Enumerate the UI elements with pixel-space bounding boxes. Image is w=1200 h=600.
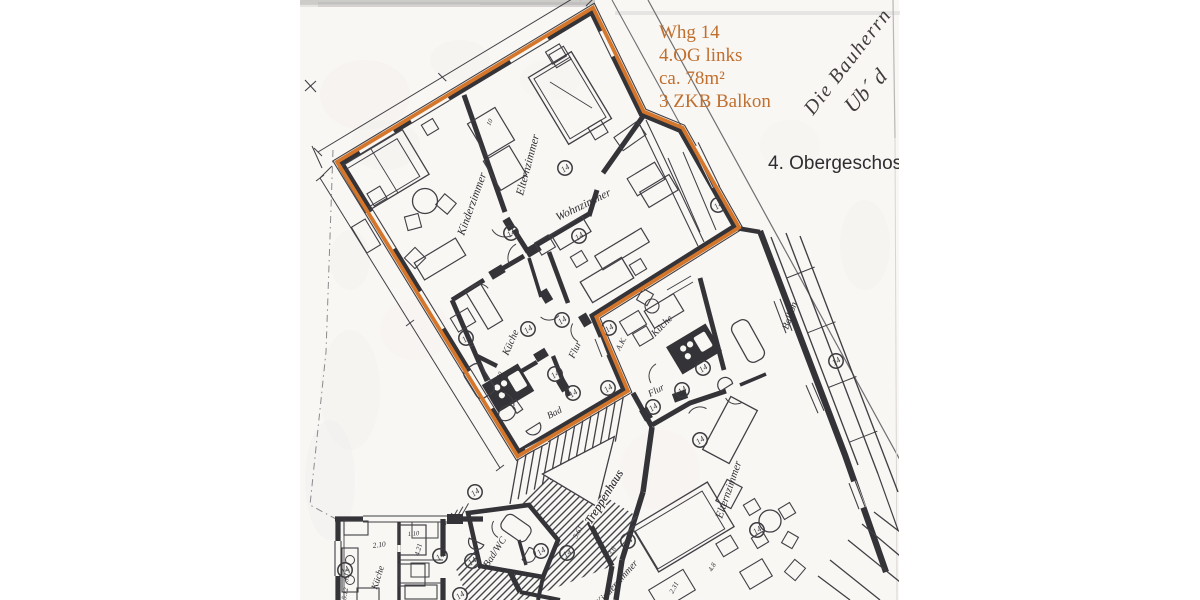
svg-text:4.OG links: 4.OG links	[659, 45, 742, 66]
svg-text:ca. 78m²: ca. 78m²	[659, 68, 725, 89]
svg-text:2.10: 2.10	[372, 539, 386, 550]
svg-text:3 ZKB Balkon: 3 ZKB Balkon	[659, 91, 771, 112]
svg-text:Whg 14: Whg 14	[659, 22, 720, 43]
svg-text:4. Obergeschos: 4. Obergeschos	[768, 153, 902, 174]
svg-text:1.10: 1.10	[408, 530, 421, 538]
